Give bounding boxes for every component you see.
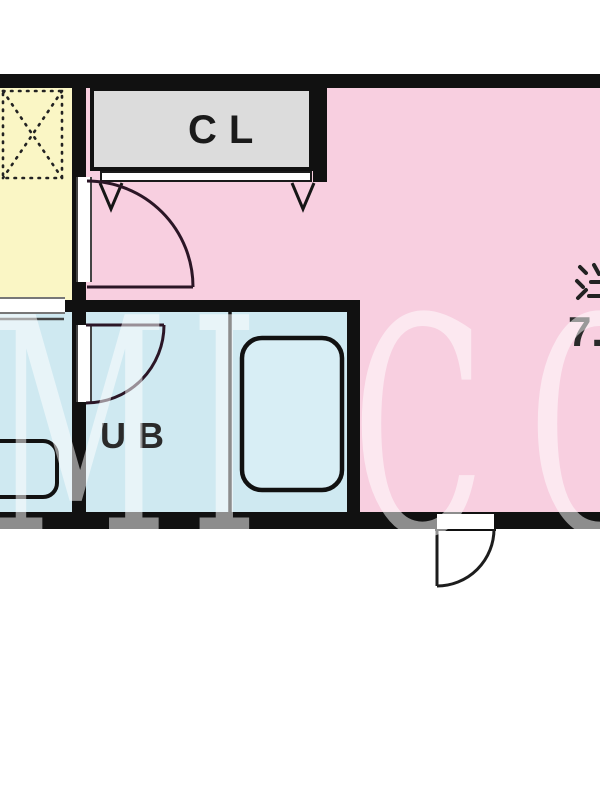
kitchen-room-yellow — [0, 88, 72, 300]
door-opening-kitchen-to-room — [76, 177, 92, 282]
room-kanji-label: 洋 — [0, 0, 1, 1]
wall-unitbath-top — [65, 300, 360, 312]
entrance-opening — [435, 512, 496, 531]
unit-bath-label: UB — [100, 415, 176, 457]
wall-unitbath-right — [347, 300, 360, 529]
utility-strip-blue — [0, 310, 72, 512]
floorplan-canvas: CL UB 7. 洋 M I C O — [0, 0, 600, 800]
door-opening-unit-bath — [76, 325, 92, 402]
closet-label: CL — [188, 108, 265, 153]
closet-door-track — [100, 171, 312, 182]
wall-closet-stub — [313, 74, 327, 182]
door-swing-entrance — [437, 529, 494, 586]
wall-top — [0, 74, 600, 88]
unit-bath-room — [86, 312, 347, 512]
wall-bottom — [0, 512, 600, 529]
room-size-label: 7. — [568, 308, 600, 356]
opening-kitchen-to-utility — [0, 297, 65, 314]
